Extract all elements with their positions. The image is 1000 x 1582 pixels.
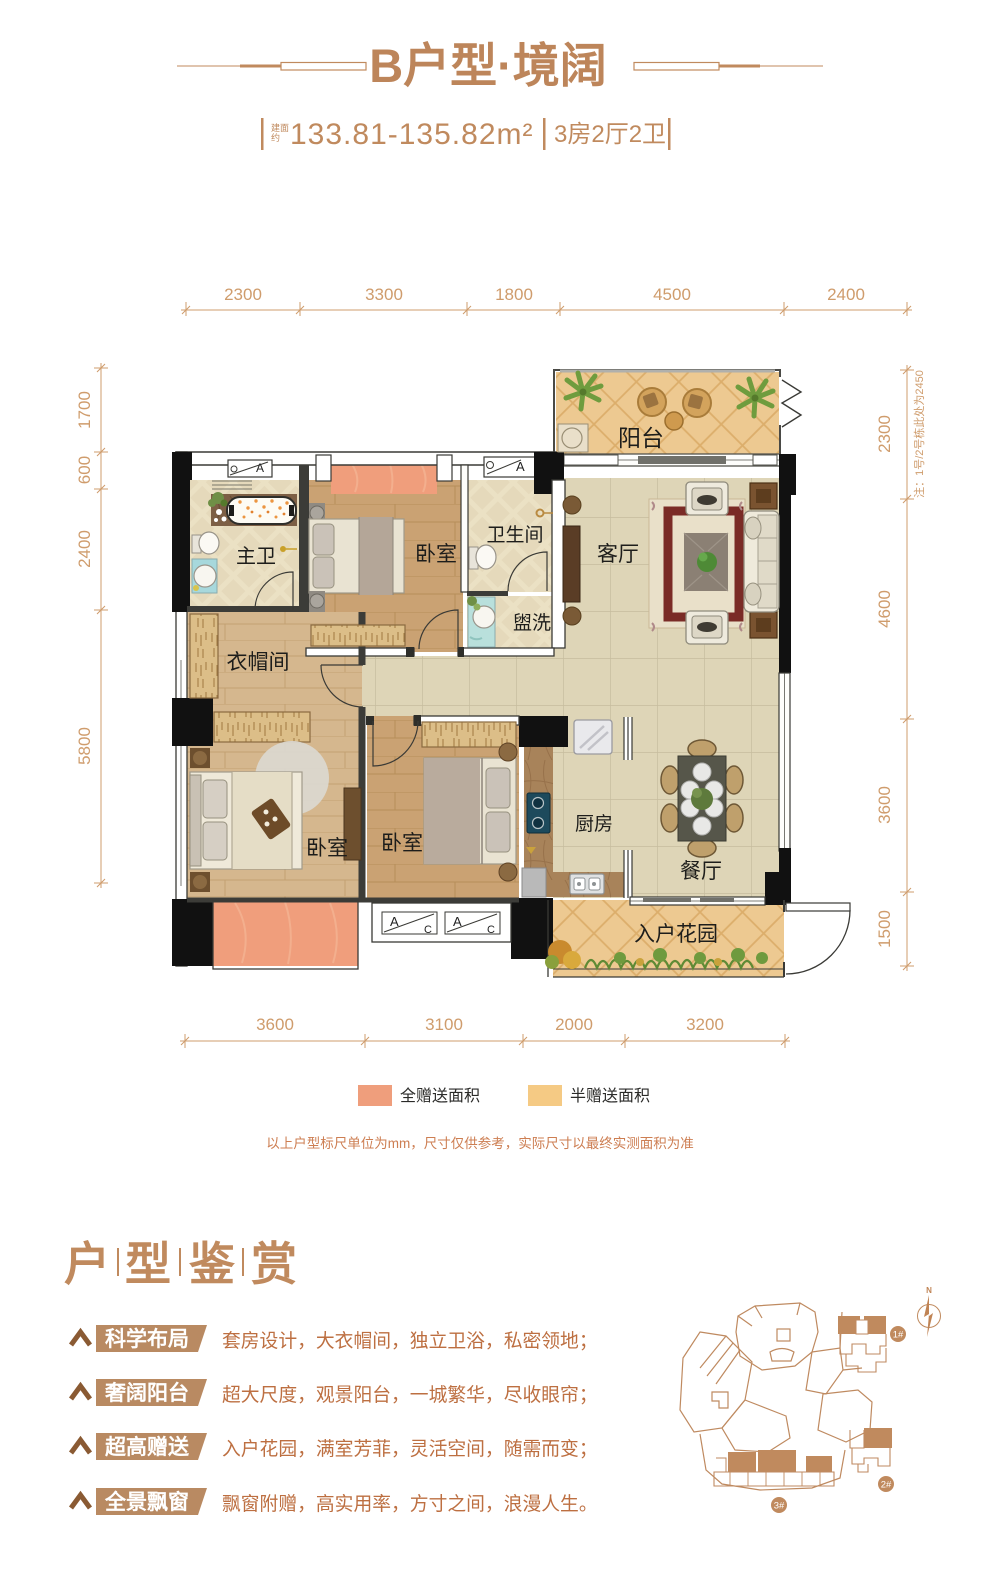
svg-text:卧室: 卧室 [415, 543, 457, 566]
svg-text:建面: 建面 [271, 122, 289, 133]
svg-text:A: A [453, 914, 462, 929]
svg-text:1800: 1800 [495, 285, 533, 304]
svg-text:型: 型 [125, 1238, 171, 1290]
svg-text:鉴: 鉴 [189, 1238, 236, 1290]
svg-text:N: N [926, 1286, 932, 1295]
svg-text:全景飘窗: 全景飘窗 [104, 1490, 189, 1514]
svg-text:C: C [487, 924, 495, 936]
svg-text:卧室: 卧室 [381, 832, 423, 855]
svg-text:约: 约 [271, 132, 280, 143]
svg-text:入户花园，满室芳菲，灵活空间，随需而变；: 入户花园，满室芳菲，灵活空间，随需而变； [222, 1438, 598, 1459]
svg-text:3300: 3300 [365, 285, 403, 304]
svg-text:3100: 3100 [425, 1015, 463, 1034]
svg-text:3600: 3600 [256, 1015, 294, 1034]
svg-text:A: A [256, 461, 264, 475]
svg-text:133.81-135.82m²: 133.81-135.82m² [290, 118, 534, 151]
svg-text:入户花园: 入户花园 [634, 923, 718, 946]
svg-text:2000: 2000 [555, 1015, 593, 1034]
svg-text:2300: 2300 [224, 285, 262, 304]
svg-text:赏: 赏 [251, 1238, 297, 1290]
svg-text:B户型·境阔: B户型·境阔 [369, 39, 607, 92]
svg-text:科学布局: 科学布局 [105, 1327, 189, 1351]
svg-text:A: A [390, 914, 399, 929]
svg-text:2400: 2400 [827, 285, 865, 304]
svg-text:套房设计，大衣帽间，独立卫浴，私密领地；: 套房设计，大衣帽间，独立卫浴，私密领地； [222, 1330, 598, 1351]
svg-text:衣帽间: 衣帽间 [227, 651, 290, 674]
svg-text:1500: 1500 [875, 910, 894, 948]
svg-text:卫生间: 卫生间 [486, 524, 543, 546]
svg-text:A: A [516, 459, 525, 474]
svg-text:飘窗附赠，高实用率，方寸之间，浪漫人生。: 飘窗附赠，高实用率，方寸之间，浪漫人生。 [222, 1493, 598, 1514]
svg-text:奢阔阳台: 奢阔阳台 [104, 1381, 189, 1405]
svg-text:阳台: 阳台 [618, 425, 664, 451]
svg-text:5800: 5800 [75, 727, 94, 765]
svg-text:客厅: 客厅 [597, 543, 639, 566]
svg-text:2300: 2300 [875, 415, 894, 453]
svg-text:4600: 4600 [875, 590, 894, 628]
svg-text:注：1号/2号栋此处为2450: 注：1号/2号栋此处为2450 [912, 370, 926, 498]
svg-text:户: 户 [64, 1238, 110, 1290]
svg-text:3#: 3# [774, 1501, 785, 1512]
svg-text:半赠送面积: 半赠送面积 [570, 1087, 650, 1105]
svg-text:1700: 1700 [75, 391, 94, 429]
svg-text:1#: 1# [893, 1330, 904, 1341]
svg-text:盥洗: 盥洗 [513, 612, 551, 634]
svg-text:以上户型标尺单位为mm，尺寸仅供参考，实际尺寸以最终实测面积: 以上户型标尺单位为mm，尺寸仅供参考，实际尺寸以最终实测面积为准 [266, 1135, 694, 1151]
svg-text:3房2厅2卫: 3房2厅2卫 [554, 121, 666, 148]
svg-text:2400: 2400 [75, 530, 94, 568]
svg-text:3600: 3600 [875, 786, 894, 824]
svg-text:C: C [424, 924, 432, 936]
svg-text:2#: 2# [881, 1480, 892, 1491]
svg-text:超大尺度，观景阳台，一城繁华，尽收眼帘；: 超大尺度，观景阳台，一城繁华，尽收眼帘； [222, 1384, 598, 1405]
svg-text:超高赠送: 超高赠送 [105, 1435, 190, 1459]
svg-text:餐厅: 餐厅 [680, 860, 722, 883]
svg-text:3200: 3200 [686, 1015, 724, 1034]
svg-text:全赠送面积: 全赠送面积 [400, 1087, 480, 1105]
svg-text:4500: 4500 [653, 285, 691, 304]
svg-text:600: 600 [75, 456, 94, 484]
svg-text:主卫: 主卫 [236, 545, 276, 568]
svg-text:卧室: 卧室 [306, 837, 348, 860]
svg-text:厨房: 厨房 [575, 813, 613, 835]
